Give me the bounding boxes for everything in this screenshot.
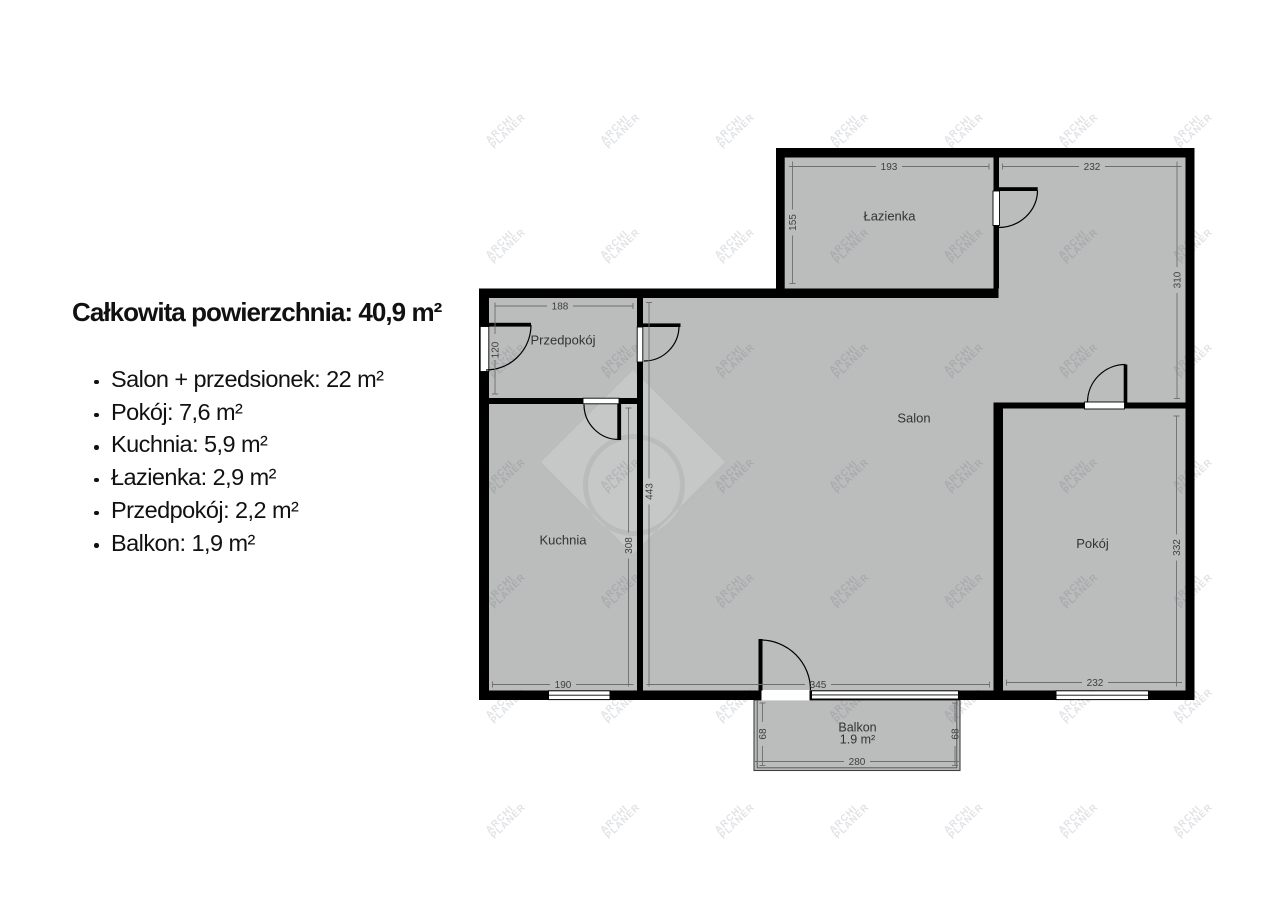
svg-text:Przedpokój: Przedpokój: [530, 333, 595, 348]
svg-text:443: 443: [645, 483, 656, 500]
svg-text:Łazienka: Łazienka: [863, 209, 916, 224]
svg-text:120: 120: [491, 341, 502, 358]
svg-text:232: 232: [1084, 162, 1101, 173]
svg-text:155: 155: [788, 214, 799, 231]
svg-text:Kuchnia: Kuchnia: [540, 533, 588, 548]
svg-text:280: 280: [849, 757, 866, 768]
svg-text:308: 308: [624, 537, 635, 554]
svg-text:193: 193: [881, 162, 898, 173]
svg-text:332: 332: [1172, 539, 1183, 556]
svg-text:310: 310: [1173, 271, 1184, 288]
svg-text:1.9 m²: 1.9 m²: [840, 733, 875, 747]
svg-text:Pokój: Pokój: [1076, 536, 1109, 551]
svg-text:68: 68: [758, 728, 769, 740]
svg-text:Salon: Salon: [897, 411, 930, 426]
svg-text:190: 190: [555, 680, 572, 691]
svg-text:345: 345: [810, 680, 827, 691]
svg-text:232: 232: [1087, 678, 1104, 689]
svg-text:68: 68: [951, 728, 962, 740]
svg-text:188: 188: [552, 302, 569, 313]
